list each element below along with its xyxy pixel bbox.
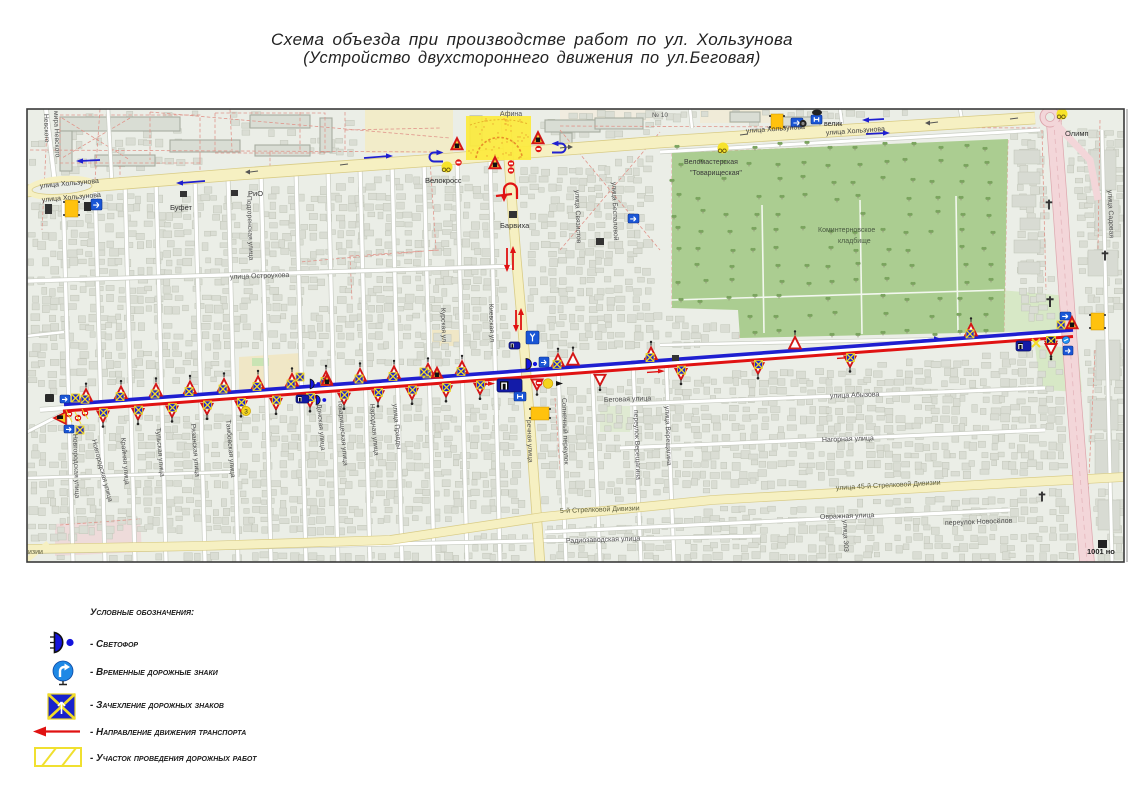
svg-text:- Участок проведения дорожных: - Участок проведения дорожных работ — [90, 753, 257, 764]
svg-text:(Устройство двухстороннего дви: (Устройство двухстороннего движения по у… — [303, 49, 760, 67]
svg-text:изии: изии — [28, 549, 43, 556]
svg-text:П: П — [1018, 342, 1023, 351]
svg-text:речная улица: речная улица — [525, 420, 533, 463]
svg-text:Олимп: Олимп — [1065, 129, 1089, 138]
svg-text:№ 10: № 10 — [652, 112, 668, 119]
svg-text:кладбище: кладбище — [838, 237, 871, 245]
svg-text:П: П — [501, 382, 508, 393]
svg-text:Киевская ул: Киевская ул — [487, 304, 495, 342]
svg-text:велик: велик — [824, 121, 843, 128]
svg-text:Коминтерновское: Коминтерновское — [818, 227, 875, 234]
svg-text:П: П — [510, 344, 514, 350]
svg-text:Афина: Афина — [500, 111, 522, 118]
svg-text:- Светофор: - Светофор — [90, 639, 138, 650]
svg-text:- Зачехление дорожных знаков: - Зачехление дорожных знаков — [90, 700, 224, 711]
svg-text:Условные обозначения:: Условные обозначения: — [90, 607, 194, 618]
svg-text:Велокросс: Велокросс — [425, 176, 462, 185]
svg-text:3: 3 — [244, 409, 248, 416]
svg-text:Курская ул: Курская ул — [439, 308, 447, 342]
svg-text:П: П — [298, 398, 302, 404]
svg-text:Невского: Невского — [42, 114, 50, 143]
svg-text:Барвиха: Барвиха — [500, 221, 530, 230]
svg-text:- Временные дорожные знаки: - Временные дорожные знаки — [90, 667, 219, 678]
svg-text:улица 303: улица 303 — [841, 520, 849, 552]
svg-text:Веломастерская: Веломастерская — [684, 159, 738, 166]
svg-text:Схема объезда при производстве: Схема объезда при производстве работ по … — [271, 30, 793, 49]
svg-text:- Направление движения трансп: - Направление движения транспорта — [90, 727, 246, 738]
svg-text:Буфет: Буфет — [170, 203, 193, 212]
svg-text:"Товарищеская": "Товарищеская" — [690, 170, 742, 177]
svg-text:1001 но: 1001 но — [1087, 547, 1115, 556]
